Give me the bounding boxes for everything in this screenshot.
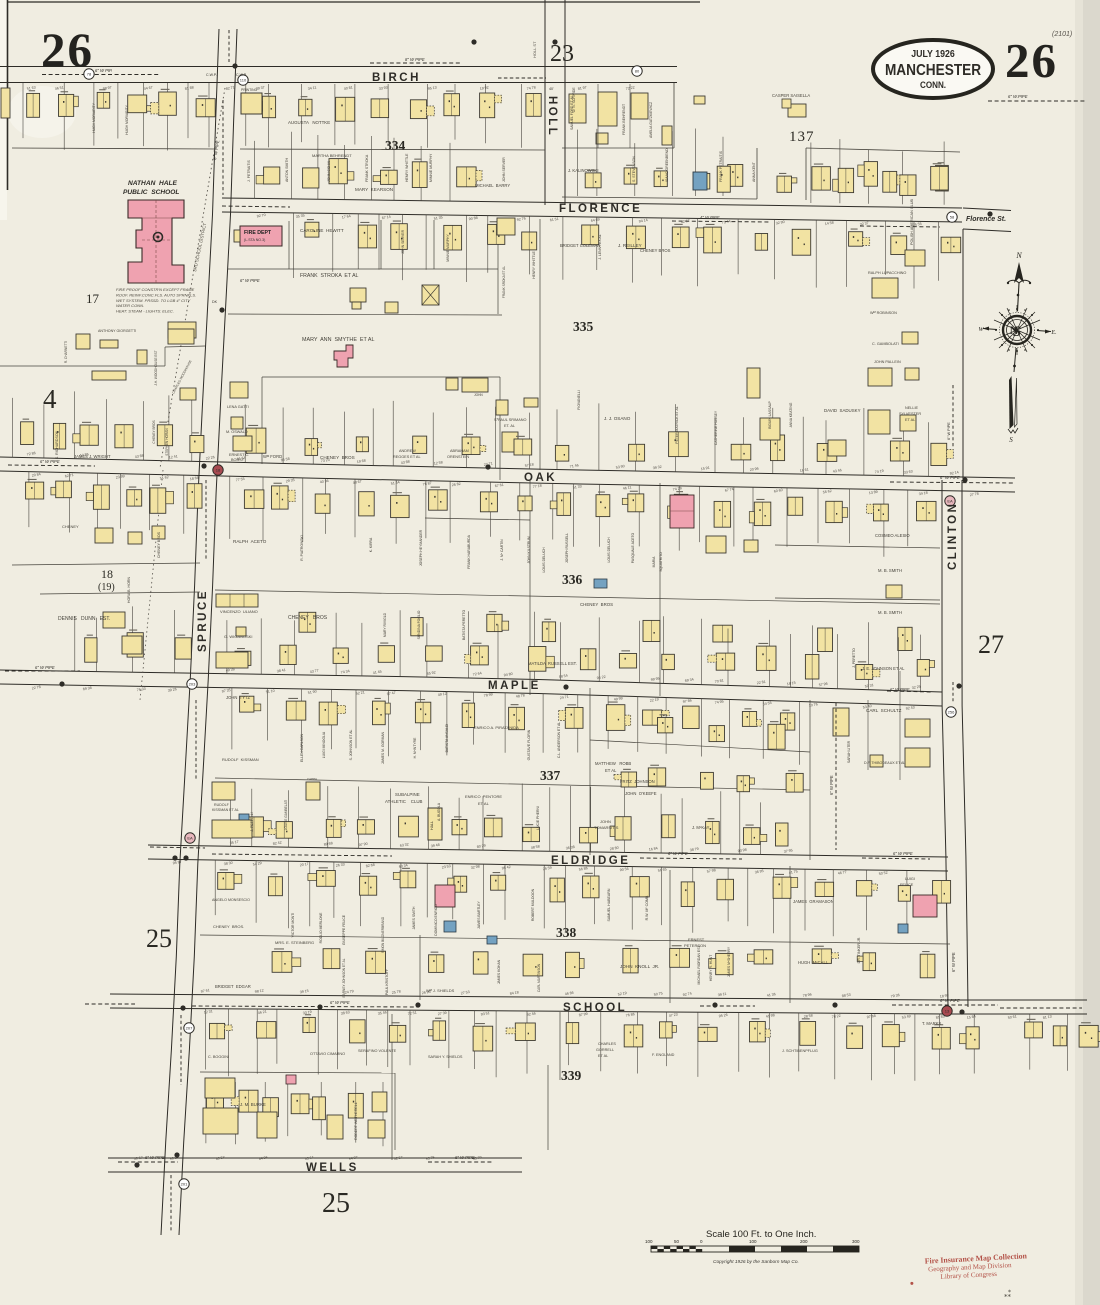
svg-text:4: 4 xyxy=(43,384,57,414)
svg-text:ANTON SMITH: ANTON SMITH xyxy=(285,157,289,182)
svg-text:GIUSEPPE FELICE: GIUSEPPE FELICE xyxy=(342,914,346,945)
svg-text:JOHN SERVER: JOHN SERVER xyxy=(401,229,405,254)
svg-text:CONN.: CONN. xyxy=(920,80,946,91)
svg-text:C.W.P.: C.W.P. xyxy=(236,73,247,77)
svg-text:DAVID SADUSKY: DAVID SADUSKY xyxy=(824,408,861,413)
svg-text:6" W PIPE: 6" W PIPE xyxy=(940,998,960,1003)
svg-text:CARL SCHULTZ: CARL SCHULTZ xyxy=(866,708,902,713)
svg-text:MARY RIVIGLD: MARY RIVIGLD xyxy=(383,612,387,637)
svg-text:26: 26 xyxy=(1005,33,1058,88)
svg-text:25: 25 xyxy=(322,1188,350,1219)
svg-text:J. E. JOHNSON ET AL: J. E. JOHNSON ET AL xyxy=(862,666,905,671)
svg-text:DR. TINKER JR.: DR. TINKER JR. xyxy=(857,937,861,964)
svg-text:REGGES ET AL: REGGES ET AL xyxy=(393,455,421,459)
svg-text:ATHLETIC CLUB: ATHLETIC CLUB xyxy=(385,799,423,804)
svg-text:MICHAEL BARRY: MICHAEL BARRY xyxy=(475,183,510,188)
svg-text:CARL MARTINSON: CARL MARTINSON xyxy=(537,963,541,992)
svg-text:N: N xyxy=(1015,251,1022,260)
svg-text:POLISH AMERICAN CLUB: POLISH AMERICAN CLUB xyxy=(910,199,914,245)
svg-text:ANDREW: ANDREW xyxy=(399,449,416,453)
svg-text:ET AL: ET AL xyxy=(478,801,490,806)
svg-text:WET SYSTEM. PRSSD. TO LGB 4" C: WET SYSTEM. PRSSD. TO LGB 4" CITY xyxy=(116,298,191,303)
svg-text:27: 27 xyxy=(978,630,1004,659)
svg-text:WATER CONN.: WATER CONN. xyxy=(116,303,144,308)
svg-text:338: 338 xyxy=(556,925,577,940)
svg-text:BATISTA PERETTO: BATISTA PERETTO xyxy=(462,609,466,640)
svg-text:6" W PIPE: 6" W PIPE xyxy=(829,775,834,795)
svg-text:SCHOOL: SCHOOL xyxy=(563,1002,627,1014)
svg-text:6" W PIPE: 6" W PIPE xyxy=(240,278,260,283)
svg-text:4" W PIPE: 4" W PIPE xyxy=(700,215,720,220)
svg-text:80: 80 xyxy=(635,69,640,74)
svg-text:H. MᶜINTYRE: H. MᶜINTYRE xyxy=(413,737,417,759)
svg-text:CHENEY BROS: CHENEY BROS xyxy=(152,420,156,443)
svg-text:RALPH ACETO: RALPH ACETO xyxy=(233,539,267,544)
svg-text:DK: DK xyxy=(212,300,218,304)
svg-text:R.W. Mᶜ COMB: R.W. Mᶜ COMB xyxy=(645,895,649,920)
svg-text:C.L. ANDERSON ET AL: C.L. ANDERSON ET AL xyxy=(557,722,561,758)
svg-text:ANNA KENT: ANNA KENT xyxy=(752,161,756,182)
svg-text:GUSTAVE FLORIN: GUSTAVE FLORIN xyxy=(527,729,531,760)
svg-text:PAUL KRISTOFF: PAUL KRISTOFF xyxy=(385,969,389,995)
svg-text:PETERSON: PETERSON xyxy=(684,943,706,948)
svg-text:FRANK PETRAITIS: FRANK PETRAITIS xyxy=(719,150,723,182)
svg-text:ORENSTEIN: ORENSTEIN xyxy=(447,455,469,459)
svg-text:HENRY R. HUNT: HENRY R. HUNT xyxy=(709,955,713,981)
svg-text:ET AL: ET AL xyxy=(905,418,915,422)
svg-text:BRIDGET EDGAR: BRIDGET EDGAR xyxy=(215,984,251,989)
svg-text:S. JOHNSON ET AL: S. JOHNSON ET AL xyxy=(349,729,353,760)
svg-text:⁎: ⁎ xyxy=(1008,1288,1011,1294)
svg-text:HEAT: STEAM - LIGHTS: ELEC.: HEAT: STEAM - LIGHTS: ELEC. xyxy=(116,309,174,314)
svg-text:MARY ANN SMYTHE ET AL: MARY ANN SMYTHE ET AL xyxy=(302,337,375,343)
svg-text:FRANK HARABURDA: FRANK HARABURDA xyxy=(467,534,471,568)
svg-text:ELLEN CARLSON: ELLEN CARLSON xyxy=(300,733,304,762)
svg-text:SᵀPAUL SRIMANO: SᵀPAUL SRIMANO xyxy=(494,418,526,422)
svg-text:HORA B. HORN: HORA B. HORN xyxy=(127,577,131,604)
svg-text:CHENEY BROS.: CHENEY BROS. xyxy=(213,924,244,929)
svg-text:FIOVANELLI: FIOVANELLI xyxy=(577,390,581,409)
svg-text:CAPPA: CAPPA xyxy=(307,777,317,781)
svg-text:D.F. THIBODEAUX ET AL: D.F. THIBODEAUX ET AL xyxy=(864,761,905,765)
svg-text:LOUIS DELUCH: LOUIS DELUCH xyxy=(542,547,546,573)
svg-text:HUGH MORIARITY: HUGH MORIARITY xyxy=(92,102,96,133)
svg-text:HOLL ST: HOLL ST xyxy=(532,41,537,58)
svg-text:18: 18 xyxy=(101,567,113,581)
svg-text:6" W PIPE: 6" W PIPE xyxy=(893,851,913,856)
svg-text:Wᴹ FORD: Wᴹ FORD xyxy=(263,454,282,459)
svg-text:6" W PIPE: 6" W PIPE xyxy=(455,1155,475,1160)
svg-text:13: 13 xyxy=(945,1009,950,1014)
svg-text:26: 26 xyxy=(41,23,94,78)
svg-text:T. MARKS: T. MARKS xyxy=(922,1021,942,1026)
svg-text:LENA GATTI: LENA GATTI xyxy=(227,405,249,409)
svg-text:AUGUSTA NOTTKE: AUGUSTA NOTTKE xyxy=(288,120,330,125)
svg-text:LOUISE GAMBELATI: LOUISE GAMBELATI xyxy=(284,800,288,831)
svg-text:COSMEO ALESIO: COSMEO ALESIO xyxy=(875,533,910,538)
svg-text:CAROLINE HEWITT: CAROLINE HEWITT xyxy=(300,228,344,233)
svg-text:336: 336 xyxy=(562,572,583,587)
svg-text:FRANK BEHRENDT: FRANK BEHRENDT xyxy=(622,104,626,135)
svg-text:6" W PIPE: 6" W PIPE xyxy=(40,459,60,464)
svg-text:ET AL: ET AL xyxy=(605,768,617,773)
svg-text:(L.STA NO.3): (L.STA NO.3) xyxy=(244,238,265,242)
svg-text:FELICE: FELICE xyxy=(900,883,914,887)
svg-text:6" W PIPE: 6" W PIPE xyxy=(145,1155,165,1160)
svg-text:OTTAVIO CIMARNO: OTTAVIO CIMARNO xyxy=(310,1052,345,1056)
svg-text:N: N xyxy=(1010,323,1019,337)
svg-text:(19): (19) xyxy=(98,582,115,593)
svg-text:PASQUALE ACETO: PASQUALE ACETO xyxy=(631,532,635,563)
svg-text:JOHN SERVER: JOHN SERVER xyxy=(502,157,506,182)
svg-text:CHENEY BROS: CHENEY BROS xyxy=(288,615,328,621)
svg-text:MARTHA BEHRENDT: MARTHA BEHRENDT xyxy=(312,153,352,158)
svg-text:KISSMAN ET AL: KISSMAN ET AL xyxy=(212,808,239,812)
svg-text:JOHN O'KEEFE: JOHN O'KEEFE xyxy=(625,791,657,796)
svg-text:LOUIS DELUCH: LOUIS DELUCH xyxy=(607,537,611,563)
svg-text:ET. AL: ET. AL xyxy=(504,424,515,428)
svg-text:6" W PIP.: 6" W PIP. xyxy=(95,68,112,73)
svg-text:6" W PIPE: 6" W PIPE xyxy=(330,1000,350,1005)
svg-text:J. Mᶜ CARTIN: J. Mᶜ CARTIN xyxy=(500,539,504,561)
svg-text:100: 100 xyxy=(645,1239,653,1244)
svg-text:DOMINICO ENRICO: DOMINICO ENRICO xyxy=(434,904,438,936)
svg-text:SERAFINO VOLENTE: SERAFINO VOLENTE xyxy=(358,1049,397,1053)
svg-text:EA: EA xyxy=(187,836,193,841)
svg-text:JAMES SMITH: JAMES SMITH xyxy=(412,906,416,929)
svg-text:W. N. SCRIVIDE: W. N. SCRIVIDE xyxy=(572,87,576,113)
svg-text:J. PERETTO: J. PERETTO xyxy=(852,648,856,668)
svg-text:BATISTA ANSALDI: BATISTA ANSALDI xyxy=(445,724,449,753)
svg-text:6" W PIPE: 6" W PIPE xyxy=(35,665,55,670)
svg-text:ROBERT WETHERELL: ROBERT WETHERELL xyxy=(354,1102,358,1140)
svg-text:JAMES BARTLEY: JAMES BARTLEY xyxy=(477,900,481,928)
svg-text:JAMES GRAMASON: JAMES GRAMASON xyxy=(793,899,834,904)
svg-text:HENRY WHITTLE: HENRY WHITTLE xyxy=(532,250,536,278)
svg-text:Copyright 1926 by the Sanborn: Copyright 1926 by the Sanborn Map Co. xyxy=(713,1259,799,1265)
svg-text:ROOF. REINF.CONC.FLS. AUTO SPR: ROOF. REINF.CONC.FLS. AUTO SPRNKLS. xyxy=(116,292,196,297)
svg-text:C. GAMBOLATI: C. GAMBOLATI xyxy=(872,342,899,346)
svg-text:CHENEY BROS: CHENEY BROS xyxy=(157,531,161,558)
svg-text:JAMES M. GORMAN: JAMES M. GORMAN xyxy=(381,731,385,764)
svg-text:CHENEY BROS: CHENEY BROS xyxy=(580,602,613,607)
svg-text:203: 203 xyxy=(189,682,196,687)
svg-text:MANCHESTER: MANCHESTER xyxy=(885,62,982,79)
svg-text:6" W PIPE: 6" W PIPE xyxy=(947,422,951,440)
svg-text:CLINTON: CLINTON xyxy=(947,502,959,570)
svg-text:C. BOGGINI: C. BOGGINI xyxy=(208,1055,229,1059)
svg-text:8" W PIPE: 8" W PIPE xyxy=(405,57,425,62)
svg-text:Wᴹ ROBINSON: Wᴹ ROBINSON xyxy=(870,311,897,315)
svg-text:207: 207 xyxy=(186,1026,193,1031)
svg-text:M. OSWALD: M. OSWALD xyxy=(226,430,248,434)
svg-text:FRANK STROKA: FRANK STROKA xyxy=(365,154,369,182)
svg-text:JOHN PALLEIN: JOHN PALLEIN xyxy=(874,360,901,364)
svg-text:JOHN SCHAI: JOHN SCHAI xyxy=(327,161,331,182)
svg-text:JOHN: JOHN xyxy=(600,819,611,824)
svg-text:TOMARSITIS: TOMARSITIS xyxy=(594,825,619,830)
svg-text:E.: E. xyxy=(1050,330,1056,336)
svg-text:CASPER SAISELLA: CASPER SAISELLA xyxy=(772,93,810,98)
svg-text:SARAH LITER: SARAH LITER xyxy=(847,740,851,763)
svg-text:JOHN TYTZ: JOHN TYTZ xyxy=(226,695,251,700)
svg-text:RODLIO MERLONE: RODLIO MERLONE xyxy=(319,912,323,943)
svg-text:HENRY WHITTLE: HENRY WHITTLE xyxy=(405,153,409,182)
svg-text:CHENEY BROS: CHENEY BROS xyxy=(640,248,671,253)
svg-text:CHENEY: CHENEY xyxy=(62,524,79,529)
svg-text:Florence St.: Florence St. xyxy=(966,216,1006,223)
svg-text:110: 110 xyxy=(240,78,247,83)
svg-text:SARAH Y. SHIELDS: SARAH Y. SHIELDS xyxy=(428,1055,463,1059)
svg-text:256: 256 xyxy=(948,710,955,715)
svg-text:300: 300 xyxy=(852,1239,860,1244)
svg-text:J. M. BURKE: J. M. BURKE xyxy=(240,1102,266,1107)
svg-text:S. STEVENSON: S. STEVENSON xyxy=(632,156,636,182)
svg-text:A. BUGDLA: A. BUGDLA xyxy=(437,802,441,821)
svg-text:FRANK STROKA ET AL: FRANK STROKA ET AL xyxy=(300,273,359,279)
svg-text:R. CHARNETTI: R. CHARNETTI xyxy=(64,341,68,363)
svg-text:6" W PIPE: 6" W PIPE xyxy=(890,687,910,692)
svg-text:SYLVESTER: SYLVESTER xyxy=(899,412,921,416)
svg-text:HALL: HALL xyxy=(430,821,434,830)
svg-text:CHARLES: CHARLES xyxy=(598,1042,616,1046)
svg-text:C.W.P.: C.W.P. xyxy=(206,73,217,77)
svg-text:6" W PIPE: 6" W PIPE xyxy=(668,851,688,856)
svg-text:ELDRIDGE: ELDRIDGE xyxy=(551,855,630,867)
svg-text:MRS. E. STEINBERG: MRS. E. STEINBERG xyxy=(275,940,314,945)
svg-text:R. PIATROWSKI: R. PIATROWSKI xyxy=(300,535,304,560)
svg-text:BIDUIN LASSALP: BIDUIN LASSALP xyxy=(768,401,772,429)
svg-text:ROBERT MULDOON: ROBERT MULDOON xyxy=(531,888,535,921)
svg-text:SQUATRITO: SQUATRITO xyxy=(659,552,663,572)
svg-text:RUDOLF: RUDOLF xyxy=(214,803,230,807)
svg-text:HUGH MᶜCALL: HUGH MᶜCALL xyxy=(798,960,829,965)
svg-text:JOHN KILSTRUM: JOHN KILSTRUM xyxy=(527,536,531,563)
svg-text:CATHERINE HUSSEY: CATHERINE HUSSEY xyxy=(714,410,718,445)
svg-text:LUCIE PHERNI: LUCIE PHERNI xyxy=(536,806,540,830)
svg-text:MARIA: MARIA xyxy=(652,556,656,567)
svg-text:FRANK SROKA ET AL: FRANK SROKA ET AL xyxy=(502,266,506,298)
svg-text:MARY KEARSON: MARY KEARSON xyxy=(355,187,393,192)
svg-text:MICHAEL RIORDAN EST: MICHAEL RIORDAN EST xyxy=(697,945,701,984)
svg-text:MATILDA RUSSELL EST.: MATILDA RUSSELL EST. xyxy=(528,661,577,666)
svg-text:FRITZ JOHNSON: FRITZ JOHNSON xyxy=(620,779,655,784)
svg-text:JAMES KOHAN: JAMES KOHAN xyxy=(497,959,501,984)
svg-text:JOHN: JOHN xyxy=(474,393,483,397)
svg-text:FIRE PROOF CONSTR'N EXCEPT FRA: FIRE PROOF CONSTR'N EXCEPT FRAME xyxy=(116,287,195,292)
svg-text:BRIDGET COLEMAN: BRIDGET COLEMAN xyxy=(560,243,600,248)
svg-text:HOLL: HOLL xyxy=(546,96,558,137)
svg-text:S. RICHARDSON: S. RICHARDSON xyxy=(55,430,59,459)
svg-text:ANGELO MONSESCIO: ANGELO MONSESCIO xyxy=(212,898,250,902)
svg-text:VINCENZO ULIANO: VINCENZO ULIANO xyxy=(220,609,258,614)
svg-text:NELLIE: NELLIE xyxy=(905,406,919,410)
svg-text:ISAAC GREENBEND: ISAAC GREENBEND xyxy=(665,148,669,182)
svg-text:MINNIE MURPHY: MINNIE MURPHY xyxy=(429,153,433,182)
svg-text:201: 201 xyxy=(181,1182,188,1187)
svg-text:PUBLIC SCHOOL: PUBLIC SCHOOL xyxy=(123,189,179,196)
svg-text:J. LENNY EX AL: J. LENNY EX AL xyxy=(598,234,602,259)
svg-text:25: 25 xyxy=(146,924,172,953)
svg-text:50: 50 xyxy=(674,1239,680,1244)
svg-text:JOSEPH HEYMANDER: JOSEPH HEYMANDER xyxy=(419,529,423,566)
svg-text:J. PETRAITIS: J. PETRAITIS xyxy=(247,160,251,182)
svg-text:337: 337 xyxy=(540,768,561,783)
svg-text:ANTHONY GIORGETTI: ANTHONY GIORGETTI xyxy=(98,329,136,333)
svg-text:J. J. OSANO: J. J. OSANO xyxy=(604,416,631,421)
svg-text:GORRELL: GORRELL xyxy=(596,1048,614,1052)
svg-text:ENRICO PENTORE: ENRICO PENTORE xyxy=(465,794,502,799)
svg-text:J. KALINOWSKI: J. KALINOWSKI xyxy=(568,168,598,173)
svg-text:OAK: OAK xyxy=(524,472,557,484)
svg-text:(2101): (2101) xyxy=(1052,31,1072,38)
svg-text:FIRE DEPT: FIRE DEPT xyxy=(244,230,272,236)
svg-text:J. REILLEY: J. REILLEY xyxy=(618,243,642,248)
svg-text:M. B. SMITH: M. B. SMITH xyxy=(878,568,902,573)
svg-text:MAPLE: MAPLE xyxy=(488,680,541,692)
svg-text:RALPH LUPACCHINO: RALPH LUPACCHINO xyxy=(868,271,906,275)
svg-text:JAMES MᶜSHERRY: JAMES MᶜSHERRY xyxy=(727,946,731,977)
svg-text:SIMON BILDNERBRAND: SIMON BILDNERBRAND xyxy=(381,916,385,953)
svg-text:S: S xyxy=(1009,436,1013,444)
svg-text:ABRAHAM: ABRAHAM xyxy=(450,449,469,453)
svg-text:MATTHEW ROBB: MATTHEW ROBB xyxy=(595,761,631,766)
svg-text:RUDOLF KISSMAN: RUDOLF KISSMAN xyxy=(222,757,259,762)
svg-text:STEPHEN HORAN: STEPHEN HORAN xyxy=(165,428,169,456)
svg-text:JULY 1926: JULY 1926 xyxy=(911,47,955,59)
svg-text:WELLS: WELLS xyxy=(306,1162,359,1174)
svg-text:J. SCHTIBENPFLUG: J. SCHTIBENPFLUG xyxy=(782,1049,818,1053)
svg-text:JOSEPH RUSSELL: JOSEPH RUSSELL xyxy=(565,533,569,563)
svg-text:F. ENGLAND: F. ENGLAND xyxy=(652,1053,675,1057)
svg-text:SUNDINA FOGLIO: SUNDINA FOGLIO xyxy=(417,610,421,639)
svg-text:NATHAN HALE: NATHAN HALE xyxy=(128,180,178,187)
svg-text:23: 23 xyxy=(550,41,574,67)
svg-text:339: 339 xyxy=(561,1068,582,1083)
svg-text:ERNEST: ERNEST xyxy=(688,937,705,942)
svg-text:K. KIRRA: K. KIRRA xyxy=(369,537,373,552)
svg-text:100: 100 xyxy=(749,1239,757,1244)
svg-text:MINNIE MURPHY: MINNIE MURPHY xyxy=(446,234,450,262)
svg-text:PETER MATRICK ET AL: PETER MATRICK ET AL xyxy=(675,406,679,443)
svg-text:335: 335 xyxy=(573,319,594,334)
svg-text:HUGH MORIARITY: HUGH MORIARITY xyxy=(125,104,129,135)
svg-text:G. WIGANOSKI: G. WIGANOSKI xyxy=(224,634,252,639)
svg-text:6" W PIPE: 6" W PIPE xyxy=(940,475,960,480)
svg-text:FLORENCE: FLORENCE xyxy=(559,203,642,215)
svg-text:J. PETTELLI: J. PETTELLI xyxy=(250,812,254,831)
svg-text:40': 40' xyxy=(549,87,554,91)
svg-text:17: 17 xyxy=(86,291,100,306)
svg-text:J. MᶜKAY: J. MᶜKAY xyxy=(692,825,710,830)
svg-text:LUIGI: LUIGI xyxy=(905,877,915,881)
svg-text:ANNA KEATING: ANNA KEATING xyxy=(789,402,793,427)
svg-text:ENRICO A. PIRATANIDA: ENRICO A. PIRATANIDA xyxy=(474,725,519,730)
svg-text:M. B. SMITH: M. B. SMITH xyxy=(878,610,902,615)
svg-text:BIRCH: BIRCH xyxy=(372,72,421,84)
svg-text:18: 18 xyxy=(216,468,221,473)
svg-text:ET AL: ET AL xyxy=(598,1054,608,1058)
svg-text:JOHN KNOLL JR.: JOHN KNOLL JR. xyxy=(620,964,659,969)
svg-text:6" W.PIPE: 6" W.PIPE xyxy=(1008,94,1028,99)
svg-text:6" W PIPE: 6" W PIPE xyxy=(951,952,956,972)
svg-text:58: 58 xyxy=(950,215,955,220)
svg-text:SPRUCE: SPRUCE xyxy=(197,589,209,652)
svg-text:LUIGI MINOGLIA: LUIGI MINOGLIA xyxy=(322,731,326,758)
svg-text:J.H. WOODHOUSE EST: J.H. WOODHOUSE EST xyxy=(154,350,158,385)
svg-text:SAMUEL HABEARN: SAMUEL HABEARN xyxy=(607,888,611,921)
svg-text:200: 200 xyxy=(800,1239,808,1244)
svg-text:AMELIA GATZKIEWICZ: AMELIA GATZKIEWICZ xyxy=(649,102,653,138)
svg-text:VICTOR MONTI: VICTOR MONTI xyxy=(291,913,295,938)
svg-text:DENNIS DUNN EST.: DENNIS DUNN EST. xyxy=(58,616,110,622)
svg-text:SUBALPINE: SUBALPINE xyxy=(395,792,420,797)
